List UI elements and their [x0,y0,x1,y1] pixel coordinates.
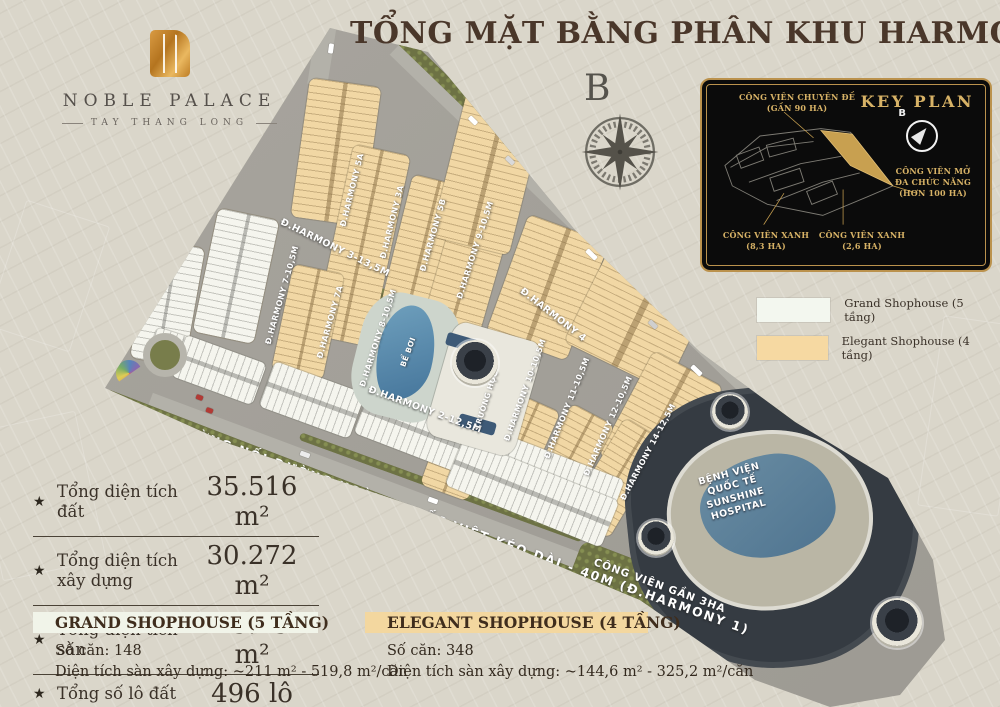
grand-shophouse-block [193,208,280,344]
stat-row: ★ Tổng diện tích xây dựng 30.272 m² [33,537,319,606]
brand-name: NOBLE PALACE [62,91,277,111]
key-plan-theme-park-label: CÔNG VIÊN CHUYÊN ĐỀ (GẦN 90 HA) [722,92,872,114]
grand-shophouse-title: GRAND SHOPHOUSE (5 TẦNG) [33,612,318,633]
label-line: (8,3 HA) [718,241,814,252]
compass-rose-icon [580,112,660,196]
page-title: TỔNG MẶT BẰNG PHÂN KHU HARMONY [350,16,995,51]
stat-row: ★ Tổng diện tích đất 35.516 m² [33,468,319,537]
legend-label: Elegant Shophouse (4 tầng) [842,334,989,362]
elegant-shophouse-info: ELEGANT SHOPHOUSE (4 TẦNG) Số căn: 348 D… [365,612,665,683]
masterplan-poster: Đ.HARMONY 6-50M Đ.HARMONY 5 (20,5M) Đ.HA… [0,0,1000,707]
legend-item-grand: Grand Shophouse (5 tầng) [757,296,989,324]
grand-units: Số căn: 148 [55,641,333,662]
north-indicator: B [584,68,610,109]
stat-label: Tổng diện tích xây dựng [57,551,185,591]
key-plan-multi-park-label: CÔNG VIÊN MỞ ĐA CHỨC NĂNG (HƠN 100 HA) [882,166,984,198]
stat-value: 496 lô [185,679,319,707]
star-icon: ★ [33,494,57,510]
label-line: (2,6 HA) [814,241,910,252]
legend-item-elegant: Elegant Shophouse (4 tầng) [757,334,989,362]
elegant-shophouse-details: Số căn: 348 Diện tích sàn xây dựng: ~144… [387,641,665,683]
elegant-units: Số căn: 348 [387,641,665,662]
grand-area: Diện tích sàn xây dựng: ~211 m² - 519,8 … [55,662,333,683]
label-line: (HƠN 100 HA) [882,188,984,199]
star-icon: ★ [33,563,57,579]
grand-shophouse-info: GRAND SHOPHOUSE (5 TẦNG) Số căn: 148 Diệ… [33,612,333,683]
school-dome [452,340,498,386]
elegant-shophouse-title: ELEGANT SHOPHOUSE (4 TẦNG) [365,612,648,633]
legend-label: Grand Shophouse (5 tầng) [844,296,989,324]
grand-shophouse-block [171,335,267,406]
elegant-shophouse-swatch [757,336,828,360]
brand-subtitle: TAY THANG LONG [62,118,277,128]
roundabout [143,333,187,377]
hospital-dome [712,394,748,430]
label-line: CÔNG VIÊN XANH [718,230,814,241]
label-line: CÔNG VIÊN XANH [814,230,910,241]
elegant-area: Diện tích sàn xây dựng: ~144,6 m² - 325,… [387,662,665,683]
label-line: CÔNG VIÊN MỞ [882,166,984,177]
grand-shophouse-swatch [757,298,830,322]
stat-label: Tổng số lô đất [57,684,185,704]
star-icon: ★ [33,686,57,702]
brand-logo: NOBLE PALACE TAY THANG LONG [62,30,277,128]
key-plan-title: KEY PLAN [861,92,974,111]
stat-label: Tổng diện tích đất [57,482,185,522]
noble-palace-emblem-icon [150,30,190,77]
hospital-dome [638,520,674,556]
car [328,43,334,54]
legend: Grand Shophouse (5 tầng) Elegant Shophou… [757,296,989,372]
stat-value: 30.272 m² [185,541,319,601]
key-plan-panel: KEY PLAN CÔNG VIÊN CHUYÊN ĐỀ (GẦN 90 HA)… [700,78,992,272]
car [195,394,203,401]
label-line: CÔNG VIÊN CHUYÊN ĐỀ [722,92,872,103]
hospital-dome [872,598,922,648]
stat-value: 35.516 m² [185,472,319,532]
grand-shophouse-details: Số căn: 148 Diện tích sàn xây dựng: ~211… [55,641,333,683]
key-plan-green-park-2-label: CÔNG VIÊN XANH (2,6 HA) [814,230,910,252]
label-line: ĐA CHỨC NĂNG [882,177,984,188]
key-plan-green-park-1-label: CÔNG VIÊN XANH (8,3 HA) [718,230,814,252]
